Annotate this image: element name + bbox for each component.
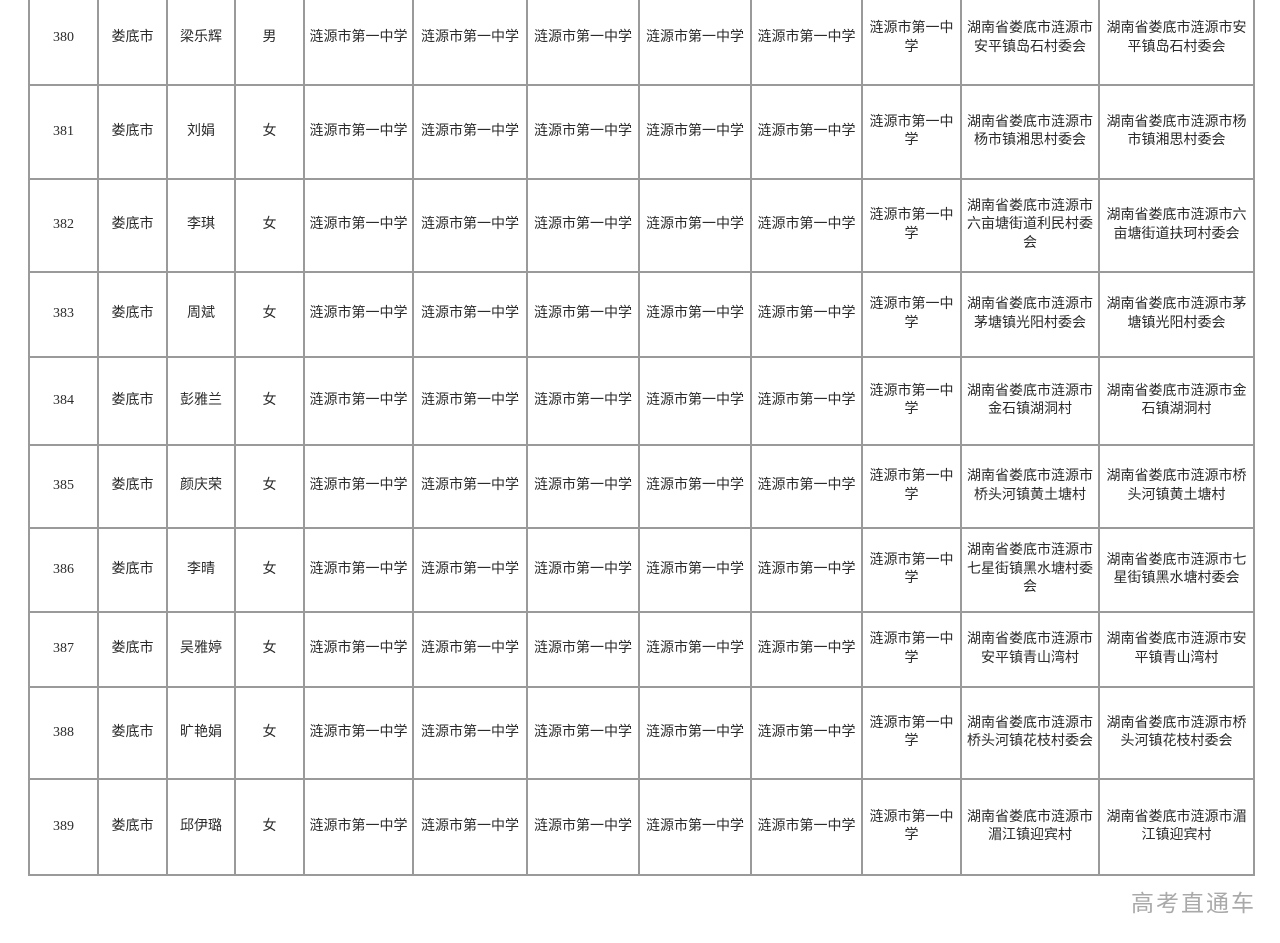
school-cell-3: 涟源市第一中学 [527,687,639,779]
gender-cell: 女 [235,85,304,179]
address2-cell: 湖南省娄底市涟源市杨市镇湘思村委会 [1099,85,1254,179]
address1-cell: 湖南省娄底市涟源市湄江镇迎宾村 [961,779,1099,875]
row-number-cell: 386 [29,528,98,612]
school-cell-6: 涟源市第一中学 [862,687,961,779]
address1-cell: 湖南省娄底市涟源市安平镇岛石村委会 [961,0,1099,85]
school-cell-5: 涟源市第一中学 [751,612,862,687]
gender-cell: 女 [235,179,304,272]
student-table-body: 380娄底市梁乐辉男涟源市第一中学涟源市第一中学涟源市第一中学涟源市第一中学涟源… [29,0,1254,875]
city-cell: 娄底市 [98,85,167,179]
school-cell-1: 涟源市第一中学 [304,687,413,779]
school-cell-4: 涟源市第一中学 [639,528,751,612]
school-cell-3: 涟源市第一中学 [527,85,639,179]
school-cell-5: 涟源市第一中学 [751,687,862,779]
school-cell-2: 涟源市第一中学 [413,612,527,687]
row-number-cell: 382 [29,179,98,272]
school-cell-4: 涟源市第一中学 [639,85,751,179]
school-cell-5: 涟源市第一中学 [751,0,862,85]
gender-cell: 女 [235,528,304,612]
gender-cell: 女 [235,357,304,445]
school-cell-6: 涟源市第一中学 [862,179,961,272]
school-cell-5: 涟源市第一中学 [751,85,862,179]
address1-cell: 湖南省娄底市涟源市安平镇青山湾村 [961,612,1099,687]
school-cell-4: 涟源市第一中学 [639,445,751,528]
row-number-cell: 385 [29,445,98,528]
school-cell-1: 涟源市第一中学 [304,0,413,85]
school-cell-3: 涟源市第一中学 [527,179,639,272]
school-cell-3: 涟源市第一中学 [527,357,639,445]
school-cell-6: 涟源市第一中学 [862,779,961,875]
school-cell-6: 涟源市第一中学 [862,0,961,85]
gender-cell: 女 [235,612,304,687]
school-cell-6: 涟源市第一中学 [862,272,961,357]
table-row: 381娄底市刘娟女涟源市第一中学涟源市第一中学涟源市第一中学涟源市第一中学涟源市… [29,85,1254,179]
school-cell-1: 涟源市第一中学 [304,612,413,687]
school-cell-1: 涟源市第一中学 [304,272,413,357]
address1-cell: 湖南省娄底市涟源市七星街镇黑水塘村委会 [961,528,1099,612]
name-cell: 颜庆荣 [167,445,235,528]
city-cell: 娄底市 [98,179,167,272]
row-number-cell: 383 [29,272,98,357]
school-cell-4: 涟源市第一中学 [639,612,751,687]
row-number-cell: 384 [29,357,98,445]
table-row: 382娄底市李琪女涟源市第一中学涟源市第一中学涟源市第一中学涟源市第一中学涟源市… [29,179,1254,272]
row-number-cell: 387 [29,612,98,687]
school-cell-2: 涟源市第一中学 [413,445,527,528]
name-cell: 旷艳娟 [167,687,235,779]
row-number-cell: 380 [29,0,98,85]
school-cell-6: 涟源市第一中学 [862,357,961,445]
school-cell-4: 涟源市第一中学 [639,357,751,445]
address2-cell: 湖南省娄底市涟源市安平镇岛石村委会 [1099,0,1254,85]
school-cell-2: 涟源市第一中学 [413,272,527,357]
gender-cell: 女 [235,272,304,357]
school-cell-2: 涟源市第一中学 [413,85,527,179]
school-cell-5: 涟源市第一中学 [751,528,862,612]
school-cell-3: 涟源市第一中学 [527,528,639,612]
city-cell: 娄底市 [98,357,167,445]
school-cell-1: 涟源市第一中学 [304,179,413,272]
name-cell: 周斌 [167,272,235,357]
school-cell-2: 涟源市第一中学 [413,179,527,272]
name-cell: 李晴 [167,528,235,612]
school-cell-2: 涟源市第一中学 [413,779,527,875]
school-cell-1: 涟源市第一中学 [304,357,413,445]
gender-cell: 女 [235,687,304,779]
student-table: 380娄底市梁乐辉男涟源市第一中学涟源市第一中学涟源市第一中学涟源市第一中学涟源… [28,0,1255,876]
table-row: 389娄底市邱伊璐女涟源市第一中学涟源市第一中学涟源市第一中学涟源市第一中学涟源… [29,779,1254,875]
school-cell-6: 涟源市第一中学 [862,612,961,687]
address2-cell: 湖南省娄底市涟源市安平镇青山湾村 [1099,612,1254,687]
school-cell-3: 涟源市第一中学 [527,0,639,85]
gender-cell: 女 [235,445,304,528]
table-row: 384娄底市彭雅兰女涟源市第一中学涟源市第一中学涟源市第一中学涟源市第一中学涟源… [29,357,1254,445]
address2-cell: 湖南省娄底市涟源市湄江镇迎宾村 [1099,779,1254,875]
table-row: 380娄底市梁乐辉男涟源市第一中学涟源市第一中学涟源市第一中学涟源市第一中学涟源… [29,0,1254,85]
school-cell-5: 涟源市第一中学 [751,357,862,445]
address2-cell: 湖南省娄底市涟源市桥头河镇黄土塘村 [1099,445,1254,528]
address2-cell: 湖南省娄底市涟源市六亩塘街道扶珂村委会 [1099,179,1254,272]
city-cell: 娄底市 [98,272,167,357]
school-cell-1: 涟源市第一中学 [304,528,413,612]
table-row: 387娄底市吴雅婷女涟源市第一中学涟源市第一中学涟源市第一中学涟源市第一中学涟源… [29,612,1254,687]
name-cell: 李琪 [167,179,235,272]
school-cell-3: 涟源市第一中学 [527,612,639,687]
table-row: 386娄底市李晴女涟源市第一中学涟源市第一中学涟源市第一中学涟源市第一中学涟源市… [29,528,1254,612]
city-cell: 娄底市 [98,612,167,687]
name-cell: 刘娟 [167,85,235,179]
name-cell: 梁乐辉 [167,0,235,85]
name-cell: 吴雅婷 [167,612,235,687]
school-cell-5: 涟源市第一中学 [751,779,862,875]
address2-cell: 湖南省娄底市涟源市七星街镇黑水塘村委会 [1099,528,1254,612]
city-cell: 娄底市 [98,687,167,779]
school-cell-5: 涟源市第一中学 [751,445,862,528]
school-cell-5: 涟源市第一中学 [751,179,862,272]
address1-cell: 湖南省娄底市涟源市杨市镇湘思村委会 [961,85,1099,179]
school-cell-6: 涟源市第一中学 [862,528,961,612]
row-number-cell: 381 [29,85,98,179]
address2-cell: 湖南省娄底市涟源市茅塘镇光阳村委会 [1099,272,1254,357]
name-cell: 邱伊璐 [167,779,235,875]
school-cell-4: 涟源市第一中学 [639,272,751,357]
school-cell-2: 涟源市第一中学 [413,687,527,779]
school-cell-6: 涟源市第一中学 [862,85,961,179]
address1-cell: 湖南省娄底市涟源市茅塘镇光阳村委会 [961,272,1099,357]
table-row: 385娄底市颜庆荣女涟源市第一中学涟源市第一中学涟源市第一中学涟源市第一中学涟源… [29,445,1254,528]
city-cell: 娄底市 [98,779,167,875]
school-cell-2: 涟源市第一中学 [413,528,527,612]
school-cell-6: 涟源市第一中学 [862,445,961,528]
school-cell-5: 涟源市第一中学 [751,272,862,357]
city-cell: 娄底市 [98,445,167,528]
school-cell-4: 涟源市第一中学 [639,0,751,85]
school-cell-1: 涟源市第一中学 [304,85,413,179]
school-cell-4: 涟源市第一中学 [639,179,751,272]
table-row: 388娄底市旷艳娟女涟源市第一中学涟源市第一中学涟源市第一中学涟源市第一中学涟源… [29,687,1254,779]
watermark: 高考直通车 [1131,884,1256,918]
school-cell-3: 涟源市第一中学 [527,445,639,528]
address1-cell: 湖南省娄底市涟源市六亩塘街道利民村委会 [961,179,1099,272]
address1-cell: 湖南省娄底市涟源市桥头河镇花枝村委会 [961,687,1099,779]
address2-cell: 湖南省娄底市涟源市桥头河镇花枝村委会 [1099,687,1254,779]
gender-cell: 女 [235,779,304,875]
school-cell-4: 涟源市第一中学 [639,779,751,875]
student-table-wrap: 380娄底市梁乐辉男涟源市第一中学涟源市第一中学涟源市第一中学涟源市第一中学涟源… [28,0,1255,876]
city-cell: 娄底市 [98,528,167,612]
address1-cell: 湖南省娄底市涟源市金石镇湖洞村 [961,357,1099,445]
table-row: 383娄底市周斌女涟源市第一中学涟源市第一中学涟源市第一中学涟源市第一中学涟源市… [29,272,1254,357]
school-cell-1: 涟源市第一中学 [304,779,413,875]
name-cell: 彭雅兰 [167,357,235,445]
school-cell-3: 涟源市第一中学 [527,779,639,875]
school-cell-2: 涟源市第一中学 [413,0,527,85]
row-number-cell: 389 [29,779,98,875]
school-cell-4: 涟源市第一中学 [639,687,751,779]
school-cell-1: 涟源市第一中学 [304,445,413,528]
city-cell: 娄底市 [98,0,167,85]
address2-cell: 湖南省娄底市涟源市金石镇湖洞村 [1099,357,1254,445]
page: 380娄底市梁乐辉男涟源市第一中学涟源市第一中学涟源市第一中学涟源市第一中学涟源… [0,0,1280,943]
school-cell-3: 涟源市第一中学 [527,272,639,357]
school-cell-2: 涟源市第一中学 [413,357,527,445]
gender-cell: 男 [235,0,304,85]
row-number-cell: 388 [29,687,98,779]
address1-cell: 湖南省娄底市涟源市桥头河镇黄土塘村 [961,445,1099,528]
